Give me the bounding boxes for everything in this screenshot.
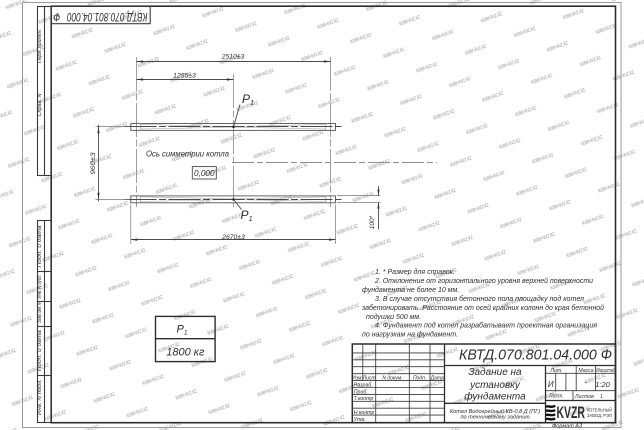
svg-text:И: И <box>548 380 554 389</box>
svg-text:КОТЕЛЬНЫЙ: КОТЕЛЬНЫЙ <box>587 406 612 413</box>
svg-text:1800 кг: 1800 кг <box>166 347 205 359</box>
svg-text:фундамента: фундамента <box>464 391 526 403</box>
svg-text:Изм.: Изм. <box>352 375 363 381</box>
svg-text:2. Отклонение от горизонтально: 2. Отклонение от горизонтального уровня … <box>374 277 593 285</box>
svg-text:4. Фундамент под котел разраба: 4. Фундамент под котел разрабатывает про… <box>375 321 597 329</box>
svg-text:Лист.: Лист. <box>548 393 564 399</box>
svg-text:Утв.: Утв. <box>354 417 366 423</box>
svg-text:0,000: 0,000 <box>194 169 215 178</box>
svg-text:Масса: Масса <box>578 368 593 374</box>
svg-text:фундамента не более 10 мм.: фундамента не более 10 мм. <box>362 286 459 294</box>
svg-text:Листов: Листов <box>574 394 594 400</box>
svg-text:ЗАВОД, РЭП: ЗАВОД, РЭП <box>587 413 612 418</box>
svg-text:Инв. N подл.: Инв. N подл. <box>37 379 43 415</box>
svg-text:Подп.: Подп. <box>413 375 426 381</box>
svg-text:1. * Размер для справок.: 1. * Размер для справок. <box>375 268 455 276</box>
svg-text:Взам. инв. N: Взам. инв. N <box>37 302 43 323</box>
svg-text:Формат А3: Формат А3 <box>552 423 583 429</box>
svg-text:KVZR: KVZR <box>557 403 586 422</box>
svg-text:100*: 100* <box>369 215 376 229</box>
svg-text:1: 1 <box>600 394 603 400</box>
svg-text:Перв. примен.: Перв. примен. <box>37 29 43 63</box>
svg-text:Лист: Лист <box>362 375 376 381</box>
svg-text:960±3: 960±3 <box>90 152 97 174</box>
svg-text:Задание на: Задание на <box>468 367 522 378</box>
svg-text:по нагрузкам на фундамент.: по нагрузкам на фундамент. <box>362 330 458 338</box>
svg-text:Н.контр: Н.контр <box>354 410 375 416</box>
svg-text:КВТД.070.801.04.000 Ф: КВТД.070.801.04.000 Ф <box>54 10 148 22</box>
svg-text:Инв. N дубл.: Инв. N дубл. <box>37 275 43 299</box>
svg-text:Подп. и дата: Подп. и дата <box>37 330 43 371</box>
svg-text:КВТД.070.801.04.000 Ф: КВТД.070.801.04.000 Ф <box>459 346 612 363</box>
svg-text:Т.контр: Т.контр <box>354 396 374 402</box>
svg-text:Масштаб: Масштаб <box>596 368 616 374</box>
svg-text:1255±3: 1255±3 <box>173 72 196 79</box>
svg-text:Подп. и дата: Подп. и дата <box>37 226 43 268</box>
svg-text:по техническому заданию: по техническому заданию <box>460 415 530 421</box>
svg-text:Справ. N: Справ. N <box>37 93 43 117</box>
svg-text:Лит.: Лит. <box>549 368 562 374</box>
svg-text:установку: установку <box>469 380 521 391</box>
svg-text:2670±3: 2670±3 <box>221 234 245 241</box>
svg-text:Проб.: Проб. <box>354 389 368 395</box>
svg-text:забетонировать. Расстояние от: забетонировать. Расстояние от осей крайн… <box>361 304 604 312</box>
svg-text:Ось симметрии котла: Ось симметрии котла <box>146 149 229 159</box>
svg-text:1:20: 1:20 <box>595 380 610 389</box>
svg-text:подушки 500 мм.: подушки 500 мм. <box>366 313 421 321</box>
svg-text:Дата: Дата <box>430 375 444 381</box>
svg-text:N докум.: N докум. <box>382 375 402 381</box>
svg-text:3. В случае отсутствия бетонно: 3. В случае отсутствия бетонного пола пл… <box>375 295 584 303</box>
svg-text:Разраб.: Разраб. <box>354 382 373 388</box>
svg-text:2510±3: 2510±3 <box>221 54 245 61</box>
